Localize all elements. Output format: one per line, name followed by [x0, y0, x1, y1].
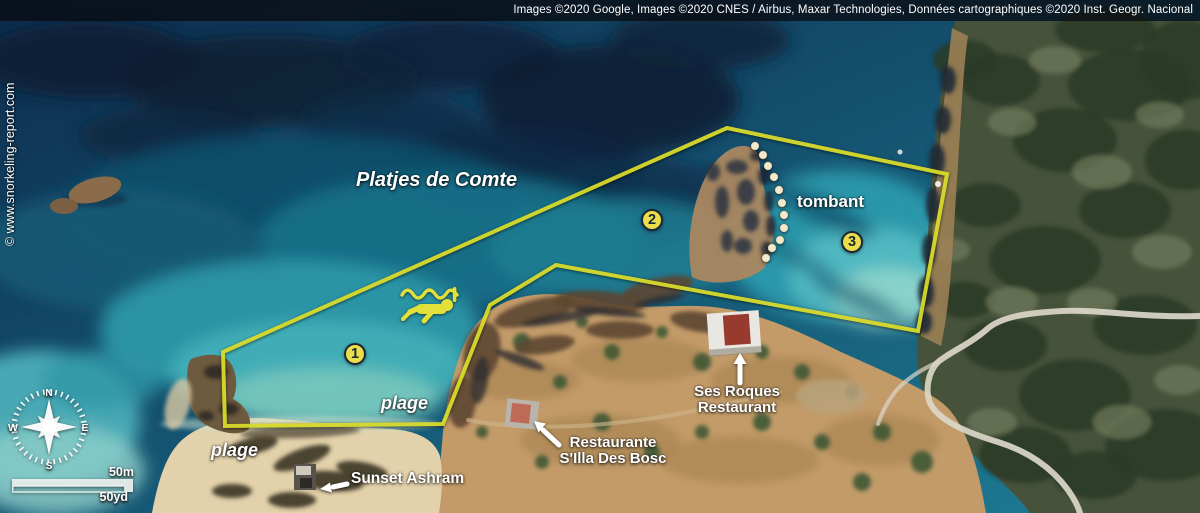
watermark-url: © www.snorkeling-report.com [3, 14, 17, 246]
silla-label-line1: Restaurante [543, 435, 683, 451]
tombant-dot [780, 211, 788, 219]
plage-upper-label: plage [381, 394, 428, 413]
snorkeler-icon [402, 287, 457, 321]
compass-north-label: N [45, 387, 53, 399]
tombant-dot [778, 199, 786, 207]
compass-south-label: S [45, 460, 52, 472]
attribution-text: Images ©2020 Google, Images ©2020 CNES /… [513, 4, 1193, 16]
scale-imperial-label: 50yd [100, 490, 129, 504]
attribution-bar: Images ©2020 Google, Images ©2020 CNES /… [0, 0, 1200, 21]
silla-label: Restaurante S'Illa Des Bosc [543, 435, 683, 467]
snorkel-zone-polygon [223, 128, 947, 426]
snorkeling-map: N E S W 50m 50yd Platjes de Comte tomban… [0, 0, 1200, 513]
scale-bar: 50m 50yd [12, 465, 134, 504]
pointer-arrow-sunset [320, 483, 347, 493]
ses-roques-label-line1: Ses Roques [667, 384, 807, 400]
spot-name-label: Platjes de Comte [356, 170, 517, 191]
zone-marker-3: 3 [841, 231, 863, 253]
tombant-dot [780, 224, 788, 232]
tombant-label: tombant [797, 193, 864, 211]
tombant-dot [775, 186, 783, 194]
compass-rose-icon: N E S W [8, 387, 88, 472]
tombant-dot [762, 254, 770, 262]
tombant-dot [768, 244, 776, 252]
ses-roques-label-line2: Restaurant [667, 400, 807, 416]
scale-metric-label: 50m [109, 465, 134, 479]
plage-lower-label: plage [211, 441, 258, 460]
zone-marker-2: 2 [641, 209, 663, 231]
ses-roques-label: Ses Roques Restaurant [667, 384, 807, 416]
tombant-dot [776, 236, 784, 244]
tombant-dot [759, 151, 767, 159]
sunset-ashram-label: Sunset Ashram [351, 471, 464, 487]
compass-east-label: E [81, 422, 88, 434]
compass-west-label: W [8, 422, 18, 434]
zone-marker-1: 1 [344, 343, 366, 365]
tombant-dot [764, 162, 772, 170]
tombant-dot [751, 142, 759, 150]
tombant-dot [770, 173, 778, 181]
pointer-arrow-ses-roques [734, 353, 747, 383]
silla-label-line2: S'Illa Des Bosc [543, 451, 683, 467]
tombant-dots-group [751, 142, 788, 262]
